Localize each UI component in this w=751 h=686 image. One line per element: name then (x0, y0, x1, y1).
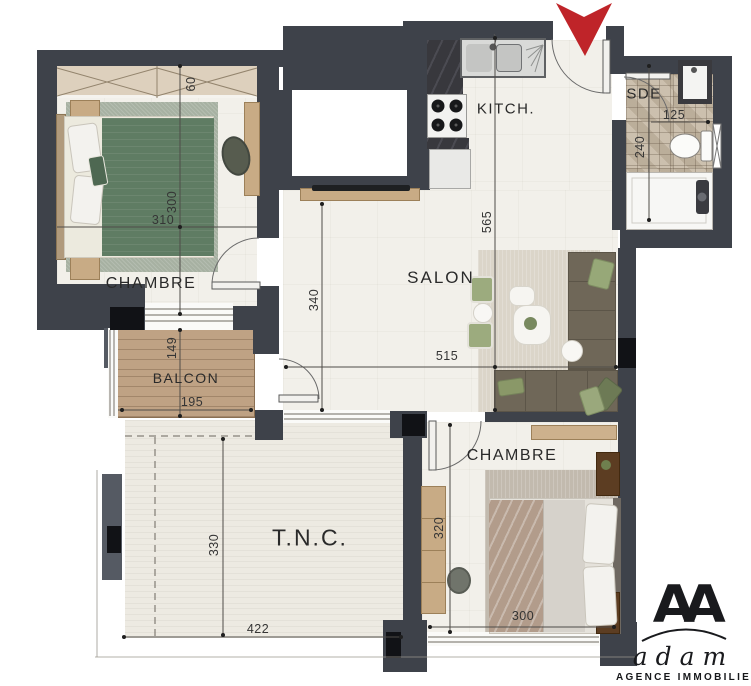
kitchen-counter-icon (427, 40, 463, 94)
dim-chambre2-depth: 320 (432, 517, 446, 539)
tnc-floor (125, 420, 403, 638)
side-table-icon (561, 340, 583, 362)
dim-chambre1-closet: 60 (184, 77, 198, 92)
wall (620, 230, 732, 248)
agency-monogram: AA (613, 580, 751, 630)
wall-accent-block (107, 526, 121, 553)
plant-icon (524, 317, 537, 330)
dresser-icon (531, 425, 617, 440)
wall (279, 90, 292, 178)
bed2-duvet (543, 500, 585, 632)
wall (233, 306, 259, 330)
window-band (427, 632, 600, 646)
wall (618, 248, 636, 425)
wall (253, 326, 279, 354)
wall-accent-block (110, 307, 144, 330)
side-table-icon (473, 303, 493, 323)
dim-chambre1-depth: 300 (165, 191, 179, 213)
dim-tnc-width: 422 (247, 622, 269, 636)
coffee-table-icon (509, 286, 535, 306)
bathroom-sink-icon (683, 66, 707, 99)
dining-chair-icon (467, 322, 493, 349)
dim-sde-width: 125 (663, 108, 685, 122)
wall (255, 410, 283, 440)
fridge-icon (429, 149, 471, 189)
room-label-sde: SDE (626, 86, 661, 103)
shower-tray (626, 172, 713, 230)
stool-icon (447, 567, 471, 594)
wall-accent-block (402, 414, 425, 436)
floor-plan: CHAMBRE 60 310 300 KITCH. SDE 125 240 SA… (0, 0, 751, 686)
wall (403, 438, 422, 638)
wall-accent-block (618, 338, 636, 368)
agency-name: adam (616, 642, 751, 671)
room-label-chambre2: CHAMBRE (467, 447, 558, 465)
dim-tnc-depth: 330 (207, 534, 221, 556)
wardrobe-icon (421, 486, 446, 614)
cooktop-icon (427, 94, 467, 138)
window-band (283, 410, 390, 423)
room-label-balcon: BALCON (153, 370, 220, 386)
dim-salon-left-height: 340 (307, 289, 321, 311)
sink-bowl-icon (466, 44, 492, 72)
room-label-salon: SALON (407, 268, 475, 288)
pillow-icon (582, 503, 618, 565)
room-label-chambre1: CHAMBRE (106, 275, 197, 293)
window-band (145, 303, 233, 330)
dim-sde-depth: 240 (633, 136, 647, 158)
dim-balcon-depth: 149 (165, 337, 179, 359)
wall (713, 56, 732, 248)
plant-icon (601, 460, 611, 470)
wall-accent-block (386, 632, 401, 658)
sink-bowl-icon (496, 44, 522, 72)
dim-kitchen-salon-height: 565 (480, 211, 494, 233)
wall (612, 120, 626, 230)
nightstand-icon (596, 452, 620, 496)
wall (37, 50, 283, 67)
agency-logo: AA adam AGENCE IMMOBILIERE (616, 580, 751, 684)
dim-balcon-width: 195 (181, 395, 203, 409)
tv-icon (312, 185, 410, 191)
dim-chambre2-width: 300 (512, 609, 534, 623)
wardrobe-icon (57, 66, 257, 98)
kitchen-counter-icon (427, 138, 469, 149)
balcony-railing (108, 328, 118, 418)
dim-chambre1-width: 310 (152, 213, 174, 227)
room-label-tnc: T.N.C. (272, 525, 348, 552)
room-label-kitchen: KITCH. (477, 101, 535, 118)
bed1-duvet (102, 118, 214, 256)
dim-salon-width: 515 (436, 349, 458, 363)
agency-tagline: AGENCE IMMOBILIERE (616, 672, 751, 683)
light-well (292, 90, 407, 176)
wall (257, 50, 279, 238)
